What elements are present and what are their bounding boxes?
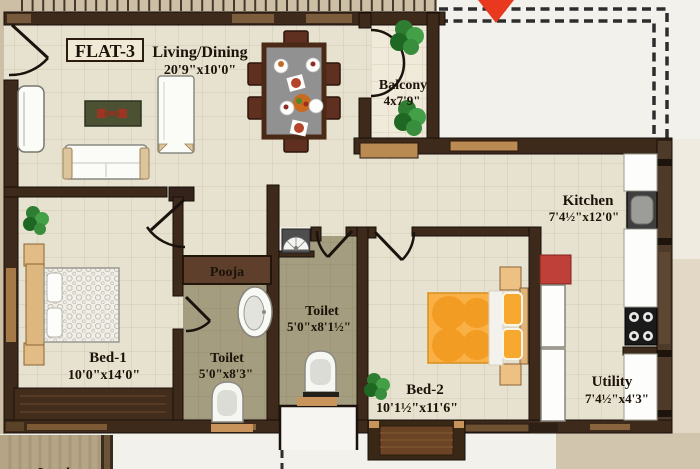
svg-text:Living/Dining: Living/Dining [152,44,247,61]
svg-text:Balcony: Balcony [379,78,427,93]
svg-text:5'0"x8'1½": 5'0"x8'1½" [287,319,351,334]
svg-text:Bed-2: Bed-2 [406,382,444,398]
svg-text:4x7'9": 4x7'9" [384,93,421,108]
svg-text:Pooja: Pooja [210,265,244,280]
svg-text:FLAT-3: FLAT-3 [75,41,135,61]
svg-text:Utility: Utility [592,374,633,390]
svg-text:Toilet: Toilet [305,304,339,319]
svg-text:10'0"x14'0": 10'0"x14'0" [68,368,140,383]
svg-text:7'4½"x12'0": 7'4½"x12'0" [549,209,619,224]
svg-text:Bed-1: Bed-1 [89,350,127,366]
svg-text:Kitchen: Kitchen [563,193,614,209]
svg-text:7'4½"x4'3": 7'4½"x4'3" [585,391,649,406]
svg-text:20'9"x10'0": 20'9"x10'0" [164,63,236,78]
svg-text:5'0"x8'3": 5'0"x8'3" [199,366,253,381]
svg-text:Toilet: Toilet [210,351,244,366]
svg-text:10'1½"x11'6": 10'1½"x11'6" [376,401,458,416]
